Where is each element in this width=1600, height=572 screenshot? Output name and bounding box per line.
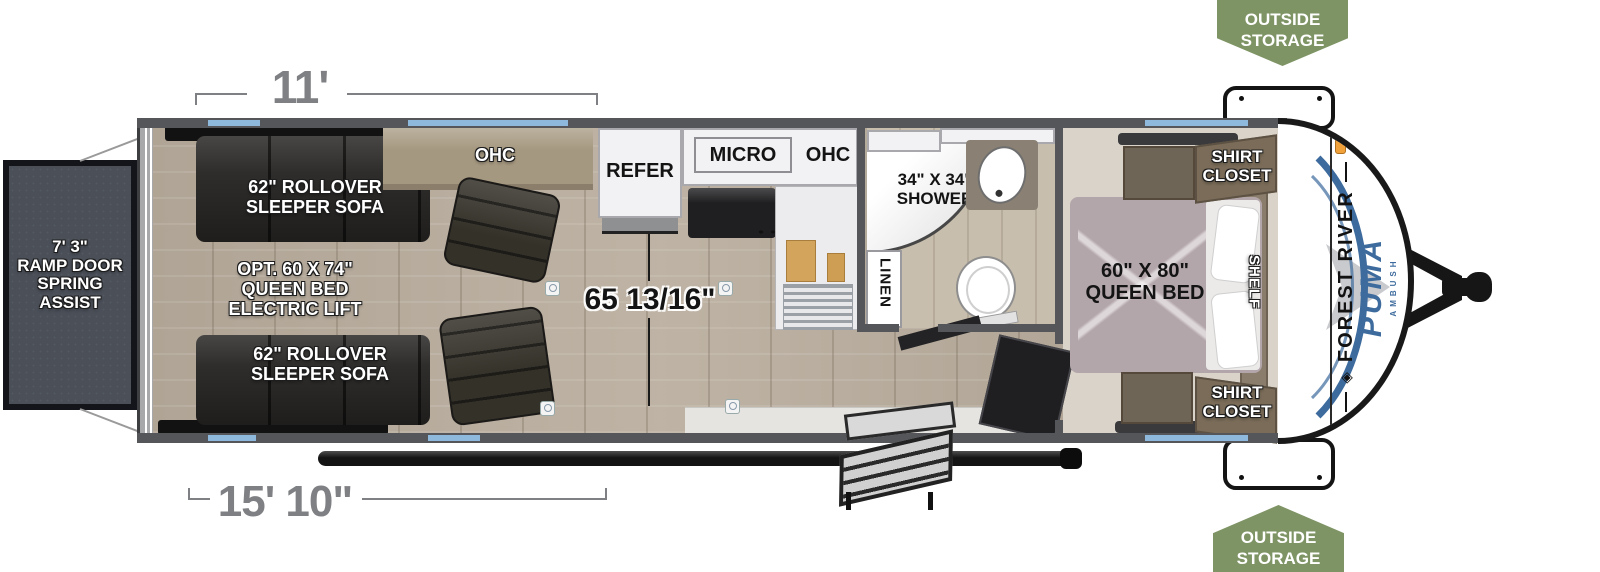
brand-rule-icon (1345, 162, 1347, 182)
window-marker (428, 435, 480, 441)
toilet (956, 256, 1016, 320)
ceiling-light-icon (540, 401, 555, 416)
cutting-board (786, 240, 816, 282)
sink-grate (783, 284, 853, 330)
rack-pin-icon (1239, 96, 1244, 101)
wall-bath-bottom (938, 324, 1063, 332)
hitch-coupler (1464, 272, 1492, 302)
refrigerator-base (602, 218, 678, 234)
bath-upper-cabinet (867, 130, 941, 152)
queen-bed-label: 60" X 80" QUEEN BED (1080, 260, 1210, 305)
window-marker (1145, 435, 1248, 441)
wall-bath-left (857, 128, 865, 330)
height-label: 65 13/16" (560, 283, 740, 317)
storage-rack-bottom (1223, 438, 1335, 490)
step-leg (928, 492, 933, 510)
awning-endcap (1060, 448, 1082, 469)
front-cap: ◈ FOREST RIVER PUMA AMBUSH (1278, 118, 1414, 444)
wall-bedroom (1055, 128, 1063, 344)
ramp-leader-line (80, 137, 140, 162)
ramp-door: 7' 3" RAMP DOOR SPRING ASSIST (3, 160, 137, 410)
clearance-light-icon (1335, 138, 1346, 154)
toilet-seat (966, 266, 1010, 314)
cutting-board-small (827, 253, 845, 282)
ramp-door-label: 7' 3" RAMP DOOR SPRING ASSIST (9, 238, 131, 313)
dimension-bottom-label: 15' 10" (210, 477, 360, 527)
rack-pin-icon (1317, 96, 1322, 101)
shirt-closet-bottom-label: SHIRT CLOSET (1192, 384, 1282, 421)
model-text: PUMA AMBUSH (1355, 197, 1397, 377)
micro-label: MICRO (694, 144, 792, 166)
rear-wall-frame (137, 118, 153, 443)
nightstand-top (1123, 146, 1195, 200)
rack-pin-icon (1317, 475, 1322, 480)
ceiling-light-icon (545, 281, 560, 296)
rear-frame-line (145, 122, 147, 439)
awning-bar (318, 451, 1076, 466)
outside-storage-badge-top: OUTSIDE STORAGE (1217, 0, 1348, 66)
model-name: PUMA (1355, 237, 1389, 337)
wall-bottom (137, 433, 1287, 443)
linen-label: LINEN (876, 258, 893, 308)
window-marker (208, 435, 256, 441)
wall-top (137, 118, 1287, 128)
rv-floorplan: 7' 3" RAMP DOOR SPRING ASSIST 62" ROLLOV… (0, 0, 1600, 572)
brand-rule-icon (1345, 392, 1347, 412)
faucet-icon (995, 189, 1003, 197)
wall-bath-bottom (857, 324, 899, 332)
submodel-name: AMBUSH (1389, 257, 1398, 316)
sofa-bottom-label: 62" ROLLOVER SLEEPER SOFA (220, 345, 420, 385)
forest-river-logo-icon: ◈ (1337, 370, 1355, 384)
shelf-label: SHELF (1245, 255, 1262, 309)
shirt-closet-top-label: SHIRT CLOSET (1192, 148, 1282, 185)
opt-queen-bed-label: OPT. 60 X 74" QUEEN BED ELECTRIC LIFT (195, 260, 395, 319)
step-leg (846, 492, 851, 510)
window-marker (208, 120, 260, 126)
rear-frame-line (150, 122, 152, 439)
outside-storage-badge-bottom: OUTSIDE STORAGE (1213, 505, 1344, 572)
recliner-chair-2 (438, 305, 556, 426)
dimension-top-label: 11' (255, 60, 345, 114)
wall-bedroom (1055, 420, 1063, 433)
ramp-leader-line (80, 408, 140, 433)
window-marker (408, 120, 568, 126)
ceiling-light-icon (725, 399, 740, 414)
refer-label: REFER (598, 160, 682, 182)
ohc-kitchen-label: OHC (798, 144, 858, 166)
height-line (648, 318, 650, 406)
nightstand-bottom (1121, 372, 1193, 424)
ohc-garage-label: OHC (445, 146, 545, 166)
linen-cabinet: LINEN (866, 250, 902, 328)
window-marker (1145, 120, 1248, 126)
clearance-light-icon (1335, 422, 1346, 438)
rack-pin-icon (1239, 475, 1244, 480)
